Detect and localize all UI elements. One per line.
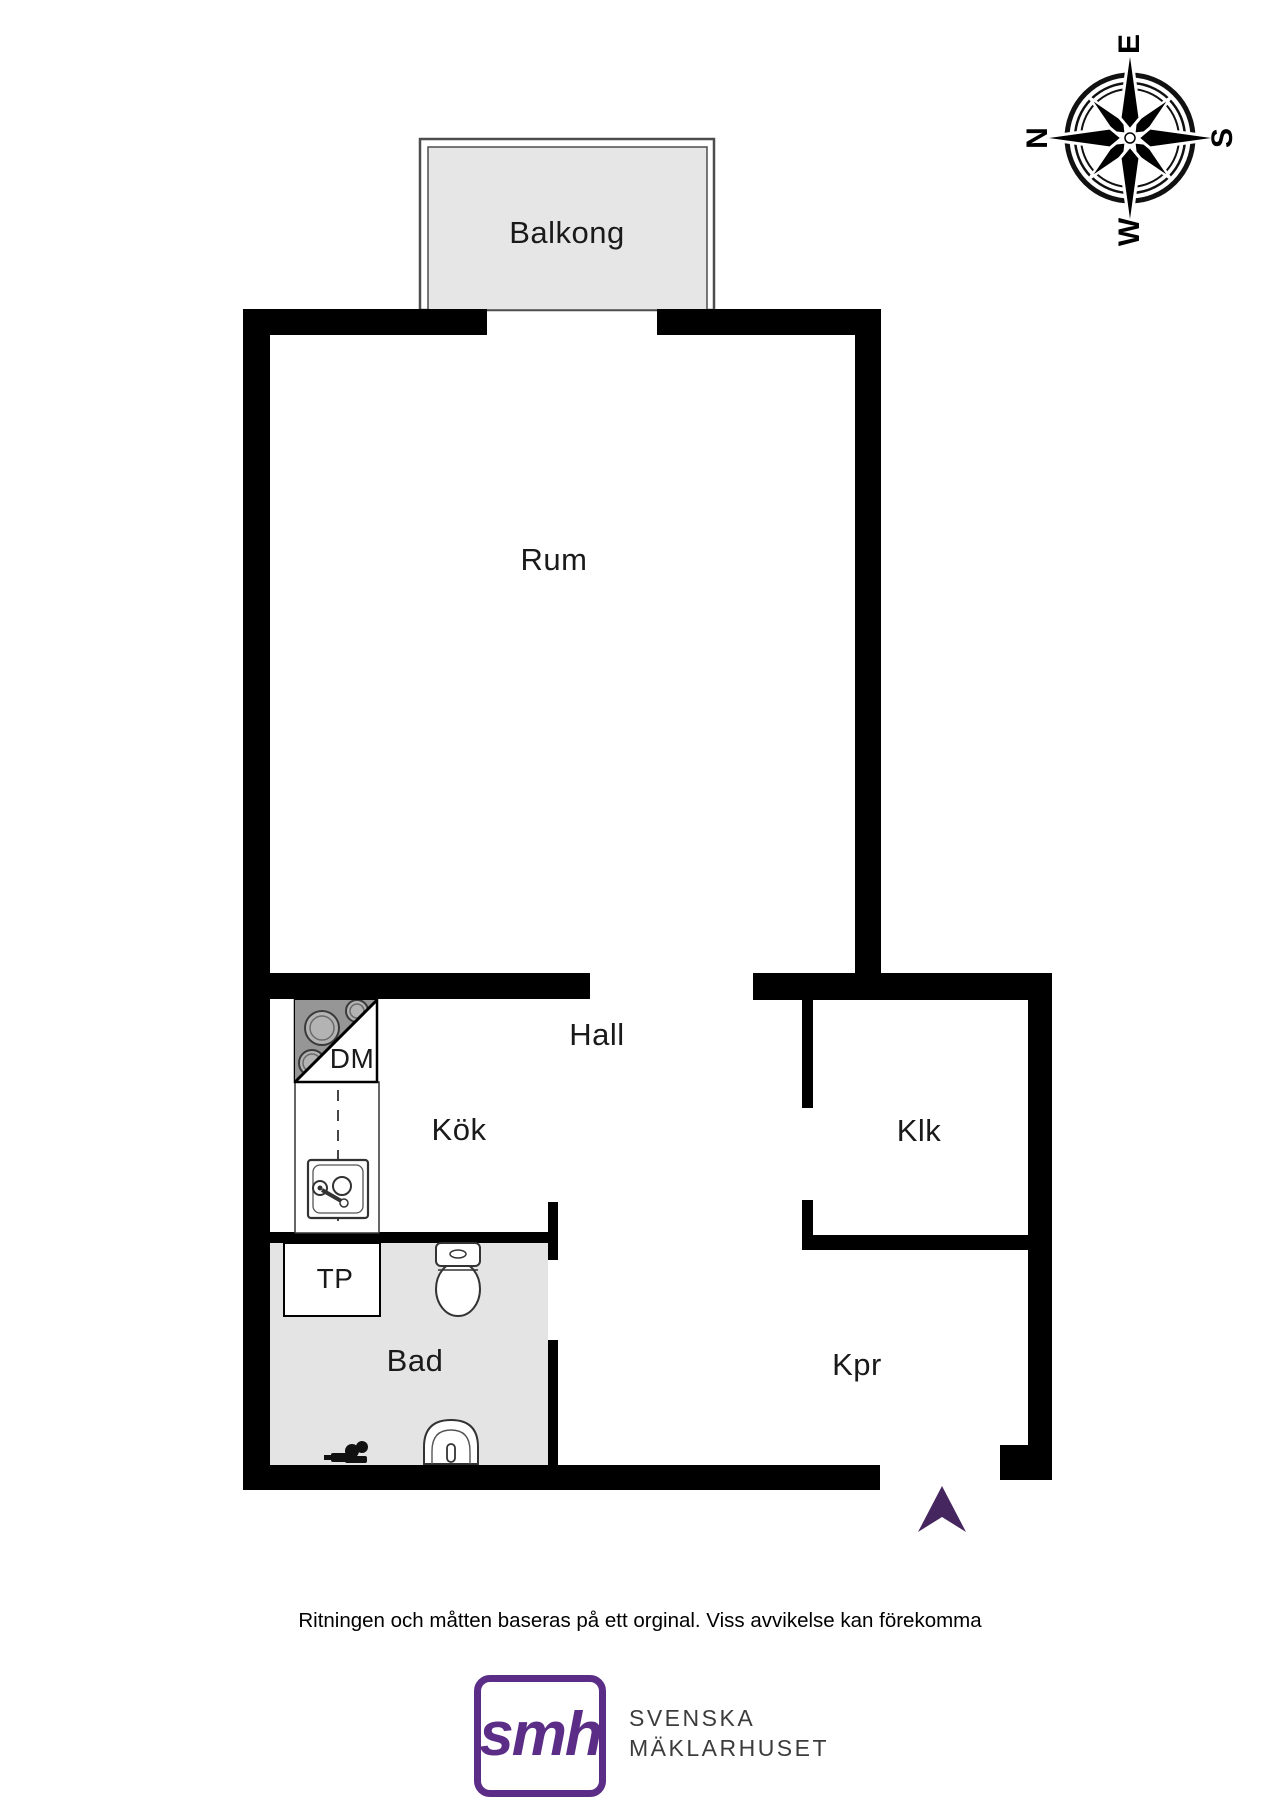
wall-bath-right-upper (548, 1202, 558, 1260)
wall-mid-right (753, 973, 1052, 1000)
wall-klk-left-upper (802, 1000, 813, 1108)
compass-north-label: N (1016, 116, 1060, 160)
disclaimer-text: Ritningen och måtten baseras på ett orgi… (298, 1609, 981, 1633)
wall-top-right (657, 309, 881, 335)
kitchen-sink-icon (308, 1160, 368, 1218)
floor-plan-page: Balkong Rum Kök Hall Klk Bad Kpr DM TP E… (0, 0, 1280, 1810)
logo-line2: MÄKLARHUSET (629, 1733, 829, 1763)
compass-rose-icon (1038, 46, 1222, 230)
wall-bath-right-lower (548, 1340, 558, 1465)
wall-top-left (243, 309, 487, 335)
label-kok: Kök (432, 1112, 487, 1148)
kitchen-fixtures (295, 1000, 379, 1233)
label-dm: DM (330, 1043, 375, 1075)
wall-bottom (243, 1465, 880, 1490)
toilet-icon (436, 1243, 480, 1316)
smh-logo-mark: smh (479, 1699, 600, 1770)
floor-plan-drawing (0, 0, 1280, 1810)
label-rum: Rum (521, 542, 588, 578)
wall-mid-left (243, 973, 590, 999)
label-klk: Klk (897, 1113, 942, 1149)
label-hall: Hall (569, 1017, 624, 1053)
smh-logo: smh (474, 1675, 606, 1797)
wall-rum-right (855, 309, 881, 973)
compass-east-label: E (1108, 22, 1152, 66)
label-kpr: Kpr (832, 1347, 882, 1383)
wall-left (243, 309, 270, 1490)
sink-basin-icon (424, 1420, 478, 1464)
wall-right (1028, 973, 1052, 1480)
logo-company-name: SVENSKA MÄKLARHUSET (629, 1703, 829, 1763)
compass-south-label: S (1201, 116, 1245, 160)
wall-entry-jamb (1000, 1445, 1030, 1480)
label-balkong: Balkong (509, 215, 625, 251)
label-tp: TP (317, 1263, 354, 1295)
logo-line1: SVENSKA (629, 1703, 829, 1733)
label-bad: Bad (387, 1343, 444, 1379)
entrance-arrow-icon (918, 1486, 966, 1532)
compass-west-label: W (1108, 210, 1152, 254)
wall-klk-bottom (802, 1235, 1028, 1250)
